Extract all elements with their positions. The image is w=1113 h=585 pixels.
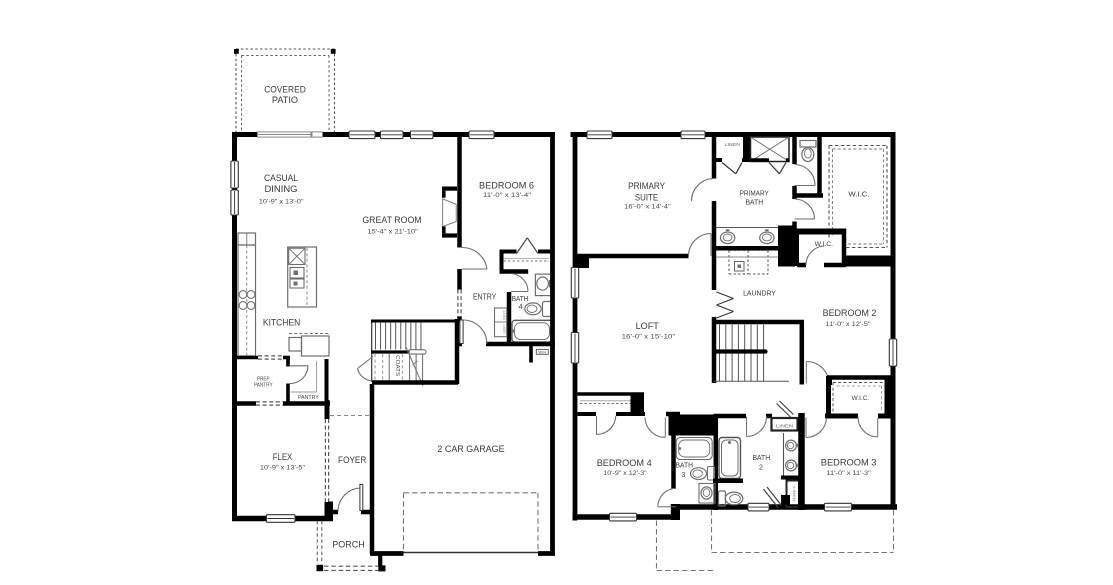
- svg-text:BATH: BATH: [745, 200, 763, 207]
- svg-text:LINEN: LINEN: [502, 311, 506, 321]
- svg-text:BEDROOM 4: BEDROOM 4: [597, 458, 653, 469]
- svg-text:DINING: DINING: [264, 184, 297, 195]
- svg-text:10'-9" x 13'-5": 10'-9" x 13'-5": [260, 464, 305, 471]
- svg-text:15'-4" x 21'-10": 15'-4" x 21'-10": [367, 228, 418, 235]
- svg-text:16'-0" x 15'-10": 16'-0" x 15'-10": [622, 334, 676, 341]
- svg-text:FLEX: FLEX: [273, 452, 293, 462]
- svg-text:BATH: BATH: [676, 463, 694, 470]
- svg-text:KITCHEN: KITCHEN: [263, 317, 300, 327]
- svg-text:W.I.C.: W.I.C.: [848, 192, 869, 199]
- svg-text:LINEN: LINEN: [502, 324, 506, 334]
- svg-text:SUITE: SUITE: [635, 193, 658, 204]
- svg-text:ENTRY: ENTRY: [473, 293, 497, 302]
- svg-text:CASUAL: CASUAL: [264, 173, 298, 184]
- svg-text:W.I.C.: W.I.C.: [852, 395, 870, 402]
- svg-text:COATS: COATS: [394, 355, 400, 376]
- svg-text:LOFT: LOFT: [636, 321, 659, 332]
- svg-text:W.I.C.: W.I.C.: [815, 241, 834, 248]
- svg-text:3: 3: [682, 472, 686, 479]
- svg-text:11'-0" x 11'-3": 11'-0" x 11'-3": [826, 470, 870, 477]
- svg-text:COVERED: COVERED: [264, 85, 306, 96]
- svg-text:LINEN: LINEN: [792, 487, 797, 502]
- svg-text:BEDROOM 6: BEDROOM 6: [479, 180, 534, 191]
- svg-text:PANTRY: PANTRY: [254, 383, 273, 389]
- svg-text:LINEN: LINEN: [725, 142, 741, 147]
- svg-text:FOYER: FOYER: [338, 455, 366, 465]
- svg-text:10'-9" x 13'-0": 10'-9" x 13'-0": [259, 198, 304, 205]
- svg-text:BATH: BATH: [752, 455, 770, 462]
- svg-text:11'-0" x 12'-5": 11'-0" x 12'-5": [826, 321, 871, 328]
- svg-text:16'-0" x 14'-4": 16'-0" x 14'-4": [624, 204, 671, 211]
- svg-text:2 CAR GARAGE: 2 CAR GARAGE: [437, 444, 504, 455]
- svg-text:LAUNDRY: LAUNDRY: [743, 290, 776, 297]
- svg-text:GREAT ROOM: GREAT ROOM: [362, 215, 421, 226]
- svg-text:PANTRY: PANTRY: [298, 395, 319, 401]
- svg-text:2: 2: [759, 465, 763, 472]
- svg-text:11'-0" x 13'-4": 11'-0" x 13'-4": [483, 192, 531, 199]
- svg-text:BEDROOM 3: BEDROOM 3: [821, 458, 877, 469]
- svg-text:LINEN: LINEN: [776, 423, 793, 428]
- svg-text:PATIO: PATIO: [272, 95, 298, 106]
- svg-text:PRIMARY: PRIMARY: [740, 191, 769, 198]
- svg-text:10'-9" x 12'-3": 10'-9" x 12'-3": [603, 470, 646, 477]
- svg-text:PRIMARY: PRIMARY: [628, 181, 665, 192]
- svg-text:PORCH: PORCH: [332, 540, 365, 550]
- svg-text:BEDROOM 2: BEDROOM 2: [823, 308, 877, 319]
- svg-text:W/H: W/H: [538, 350, 546, 354]
- svg-text:4: 4: [518, 302, 522, 311]
